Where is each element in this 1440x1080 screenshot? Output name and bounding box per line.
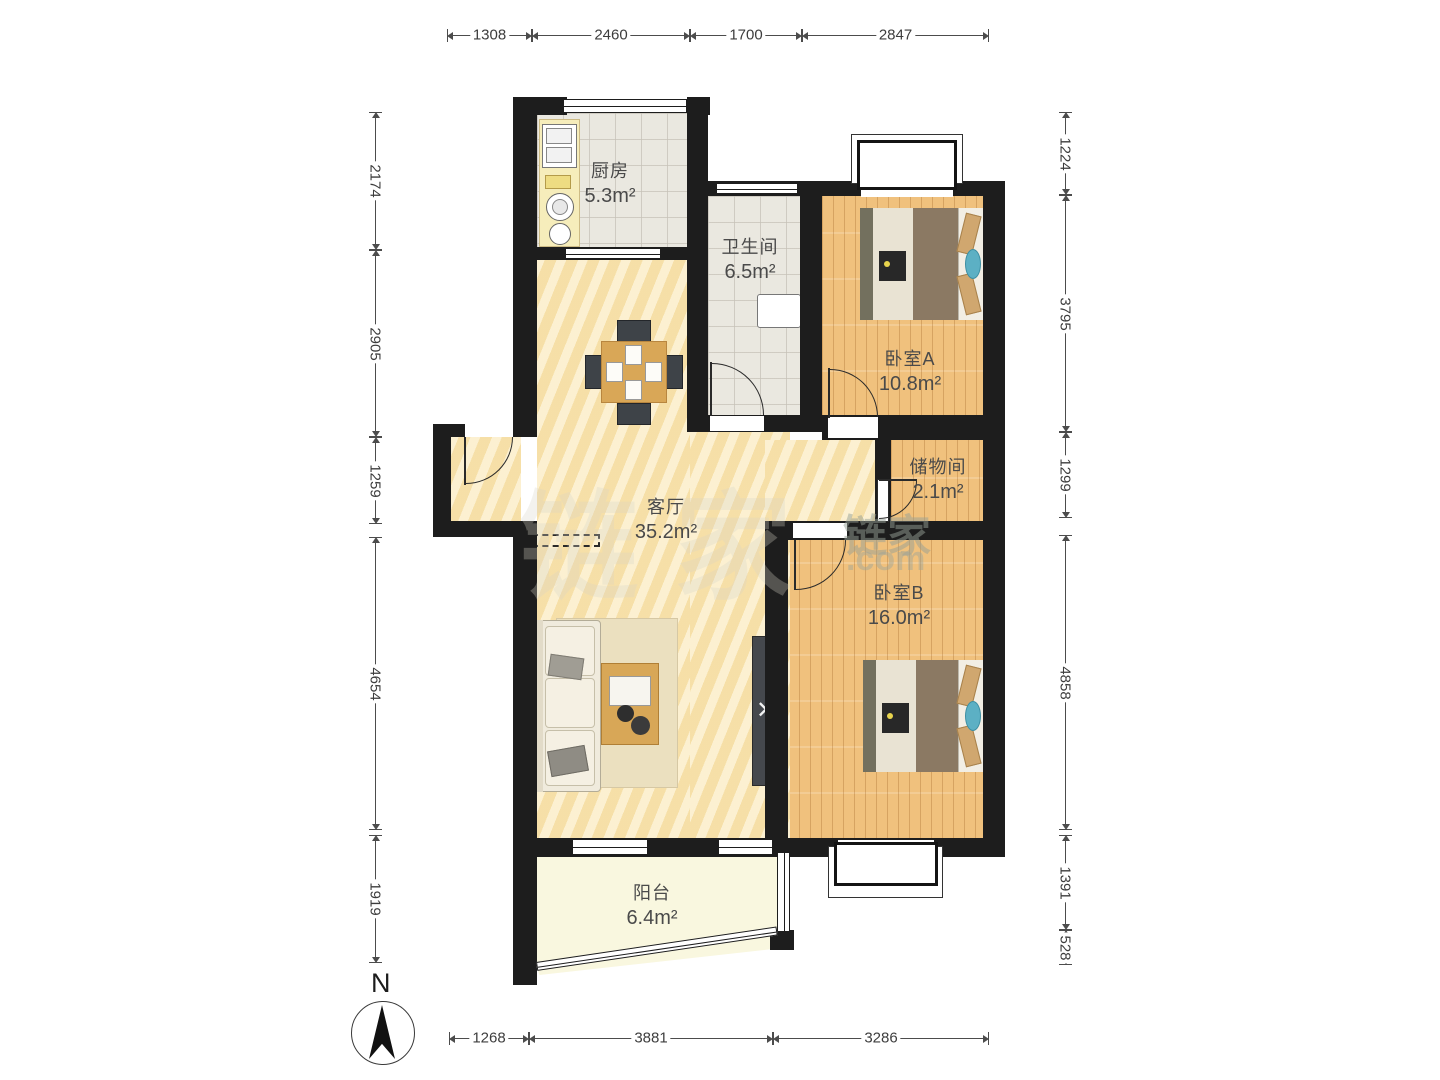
bedroom-a-bay-opening <box>861 190 953 197</box>
entry-door-opening <box>465 424 513 437</box>
kitchen-stove-dial <box>549 223 571 245</box>
room-area: 6.5m² <box>722 259 779 285</box>
room-area: 2.1m² <box>910 479 967 505</box>
wall <box>765 521 788 857</box>
room-area: 6.4m² <box>626 905 677 931</box>
dining-chair <box>617 320 651 342</box>
room-name: 客厅 <box>635 496 697 519</box>
bedroom-b-door-opening <box>793 523 847 538</box>
dimension-value: 1308 <box>470 27 509 44</box>
place-setting <box>625 345 642 365</box>
bed-bedroom-b <box>863 660 985 772</box>
room-label-bedroom-b: 卧室B 16.0m² <box>868 582 930 631</box>
room-name: 卧室B <box>868 582 930 605</box>
floor-plan-canvas: ✕ 厨房 5.3m² 卫生间 6.5m² 卧室A 10.8m² 储物间 2 <box>0 0 1440 1080</box>
kitchen-window <box>563 99 687 113</box>
room-name: 厨房 <box>584 160 635 183</box>
place-setting <box>645 362 662 382</box>
wall <box>983 181 1005 857</box>
dimension-value: 4654 <box>367 664 384 703</box>
bathroom-window <box>716 183 798 194</box>
bedroom-a-door-opening <box>828 417 878 438</box>
room-area: 16.0m² <box>868 605 930 631</box>
room-name: 卫生间 <box>722 236 779 259</box>
dimension-value: 1919 <box>367 879 384 918</box>
room-area: 5.3m² <box>584 183 635 209</box>
wall <box>513 113 537 437</box>
room-name: 卧室A <box>879 348 941 371</box>
kitchen-washer-drum <box>552 199 568 215</box>
decor-bowl <box>617 705 634 722</box>
bedroom-a-bay-window-frame <box>857 140 957 190</box>
dimension-value: 2847 <box>876 27 915 44</box>
wall <box>433 424 451 537</box>
wall <box>687 113 708 432</box>
bed-runner <box>860 208 873 320</box>
room-label-bedroom-a: 卧室A 10.8m² <box>879 348 941 397</box>
room-label-balcony: 阳台 6.4m² <box>626 882 677 931</box>
overhead-cabinet-dashed-outline <box>532 534 600 547</box>
bed-blanket <box>916 660 962 772</box>
north-label: N <box>371 968 391 999</box>
bed-blanket <box>913 208 959 320</box>
place-setting <box>606 362 623 382</box>
room-label-living: 客厅 35.2m² <box>635 496 697 545</box>
dimension-value: 1299 <box>1057 455 1074 494</box>
wall <box>800 181 822 432</box>
wall <box>451 521 537 537</box>
balcony-side-window <box>777 852 790 932</box>
room-area: 10.8m² <box>879 371 941 397</box>
coffee-table-tray <box>609 676 651 706</box>
bed-tray <box>882 703 909 733</box>
room-label-storage: 储物间 2.1m² <box>910 456 967 505</box>
dimension-value: 528 <box>1057 932 1074 963</box>
bed-runner <box>863 660 876 772</box>
kitchen-sink-basin <box>546 128 572 144</box>
bed-round-pillow <box>965 701 981 731</box>
room-label-kitchen: 厨房 5.3m² <box>584 160 635 209</box>
dimension-value: 2905 <box>367 324 384 363</box>
dimension-value: 1268 <box>469 1030 508 1047</box>
balcony-door-window <box>718 839 773 855</box>
dining-chair <box>617 403 651 425</box>
dimension-value: 3286 <box>861 1030 900 1047</box>
bathroom-door-opening <box>710 416 764 431</box>
wall <box>513 537 537 985</box>
dimension-value: 1391 <box>1057 863 1074 902</box>
floor-hallway <box>765 440 877 525</box>
room-name: 储物间 <box>910 456 967 479</box>
sofa-cushion <box>545 678 595 728</box>
bed-tray <box>879 251 906 281</box>
dimension-value: 3795 <box>1057 294 1074 333</box>
dining-chair <box>585 355 602 389</box>
dimension-value: 2460 <box>591 27 630 44</box>
dimension-value: 1224 <box>1057 134 1074 173</box>
room-label-bathroom: 卫生间 6.5m² <box>722 236 779 285</box>
dimension-value: 2174 <box>367 161 384 200</box>
room-name: 阳台 <box>626 882 677 905</box>
bed-bedroom-a <box>860 208 985 320</box>
dimension-value: 1700 <box>726 27 765 44</box>
dining-chair <box>666 355 683 389</box>
room-area: 35.2m² <box>635 519 697 545</box>
decor-bowl <box>631 716 650 735</box>
bed-round-pillow <box>965 249 981 279</box>
dimension-value: 3881 <box>631 1030 670 1047</box>
kitchen-sink-basin <box>546 147 572 163</box>
dimension-value: 4858 <box>1057 663 1074 702</box>
sofa-pillow <box>548 654 585 681</box>
bedroom-b-bay-window-frame <box>834 842 938 886</box>
washing-machine <box>757 294 801 328</box>
kitchen-pass-window <box>565 248 661 259</box>
balcony-door-window <box>572 839 648 855</box>
place-setting <box>625 380 642 400</box>
dimension-value: 1259 <box>367 461 384 500</box>
kitchen-appliance <box>545 175 571 189</box>
